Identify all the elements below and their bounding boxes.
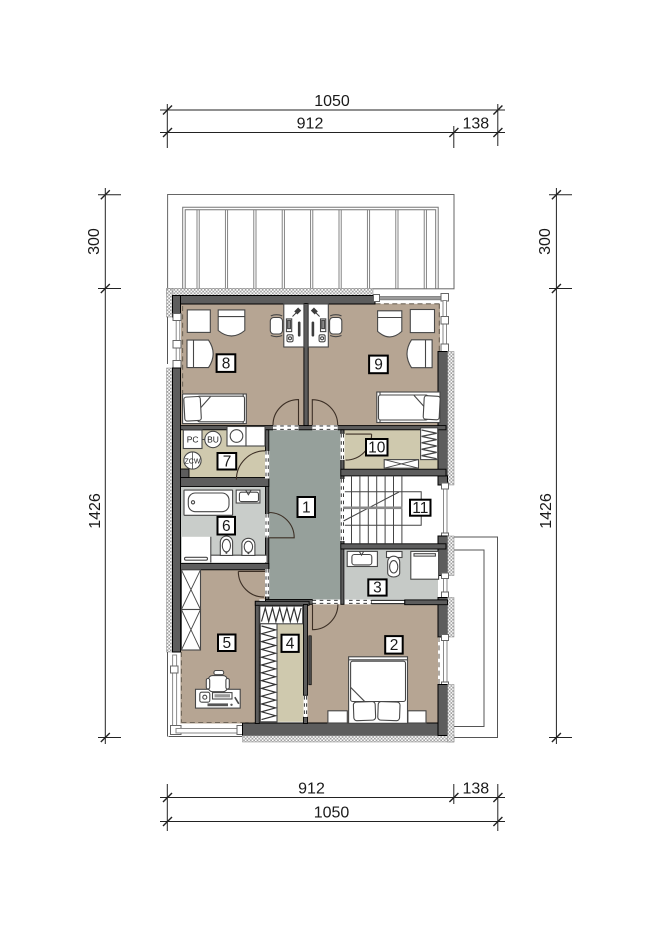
svg-text:300: 300 — [537, 228, 554, 255]
svg-text:10: 10 — [368, 440, 386, 457]
svg-text:ZCW: ZCW — [185, 458, 201, 465]
svg-text:6: 6 — [222, 518, 231, 535]
svg-text:7: 7 — [223, 453, 232, 470]
svg-text:BU: BU — [207, 435, 219, 445]
svg-text:912: 912 — [297, 116, 324, 133]
svg-text:1426: 1426 — [538, 493, 555, 529]
svg-text:4: 4 — [286, 636, 295, 653]
svg-text:1050: 1050 — [314, 93, 350, 110]
svg-text:1: 1 — [302, 499, 311, 516]
svg-text:2: 2 — [390, 637, 399, 654]
svg-text:1050: 1050 — [314, 805, 350, 822]
svg-text:PC: PC — [187, 435, 199, 445]
svg-text:8: 8 — [222, 355, 231, 372]
svg-text:3: 3 — [373, 580, 382, 597]
svg-text:11: 11 — [412, 500, 428, 517]
svg-text:9: 9 — [374, 357, 383, 374]
svg-text:5: 5 — [222, 635, 231, 652]
svg-text:1426: 1426 — [87, 493, 104, 529]
svg-text:912: 912 — [298, 781, 325, 798]
svg-text:138: 138 — [462, 116, 489, 133]
svg-text:138: 138 — [462, 781, 489, 798]
svg-text:300: 300 — [86, 228, 103, 255]
